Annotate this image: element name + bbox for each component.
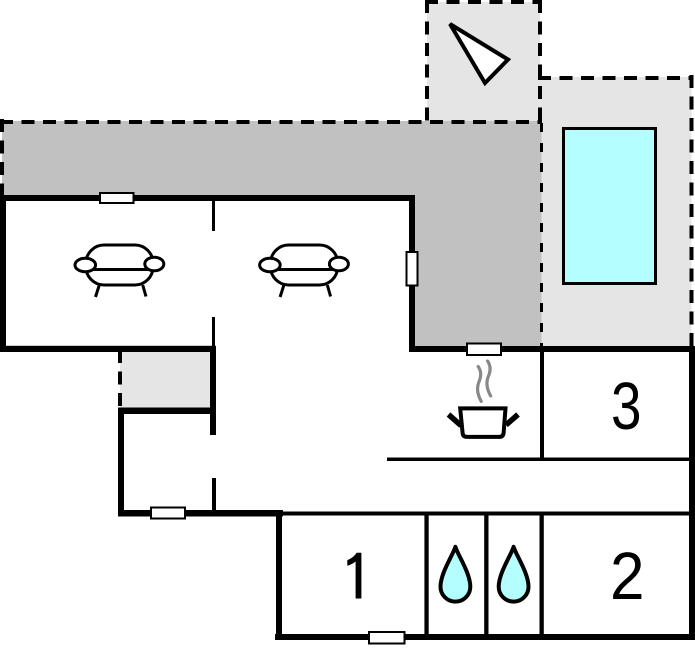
svg-text:2: 2	[610, 539, 645, 614]
svg-text:3: 3	[611, 369, 642, 444]
